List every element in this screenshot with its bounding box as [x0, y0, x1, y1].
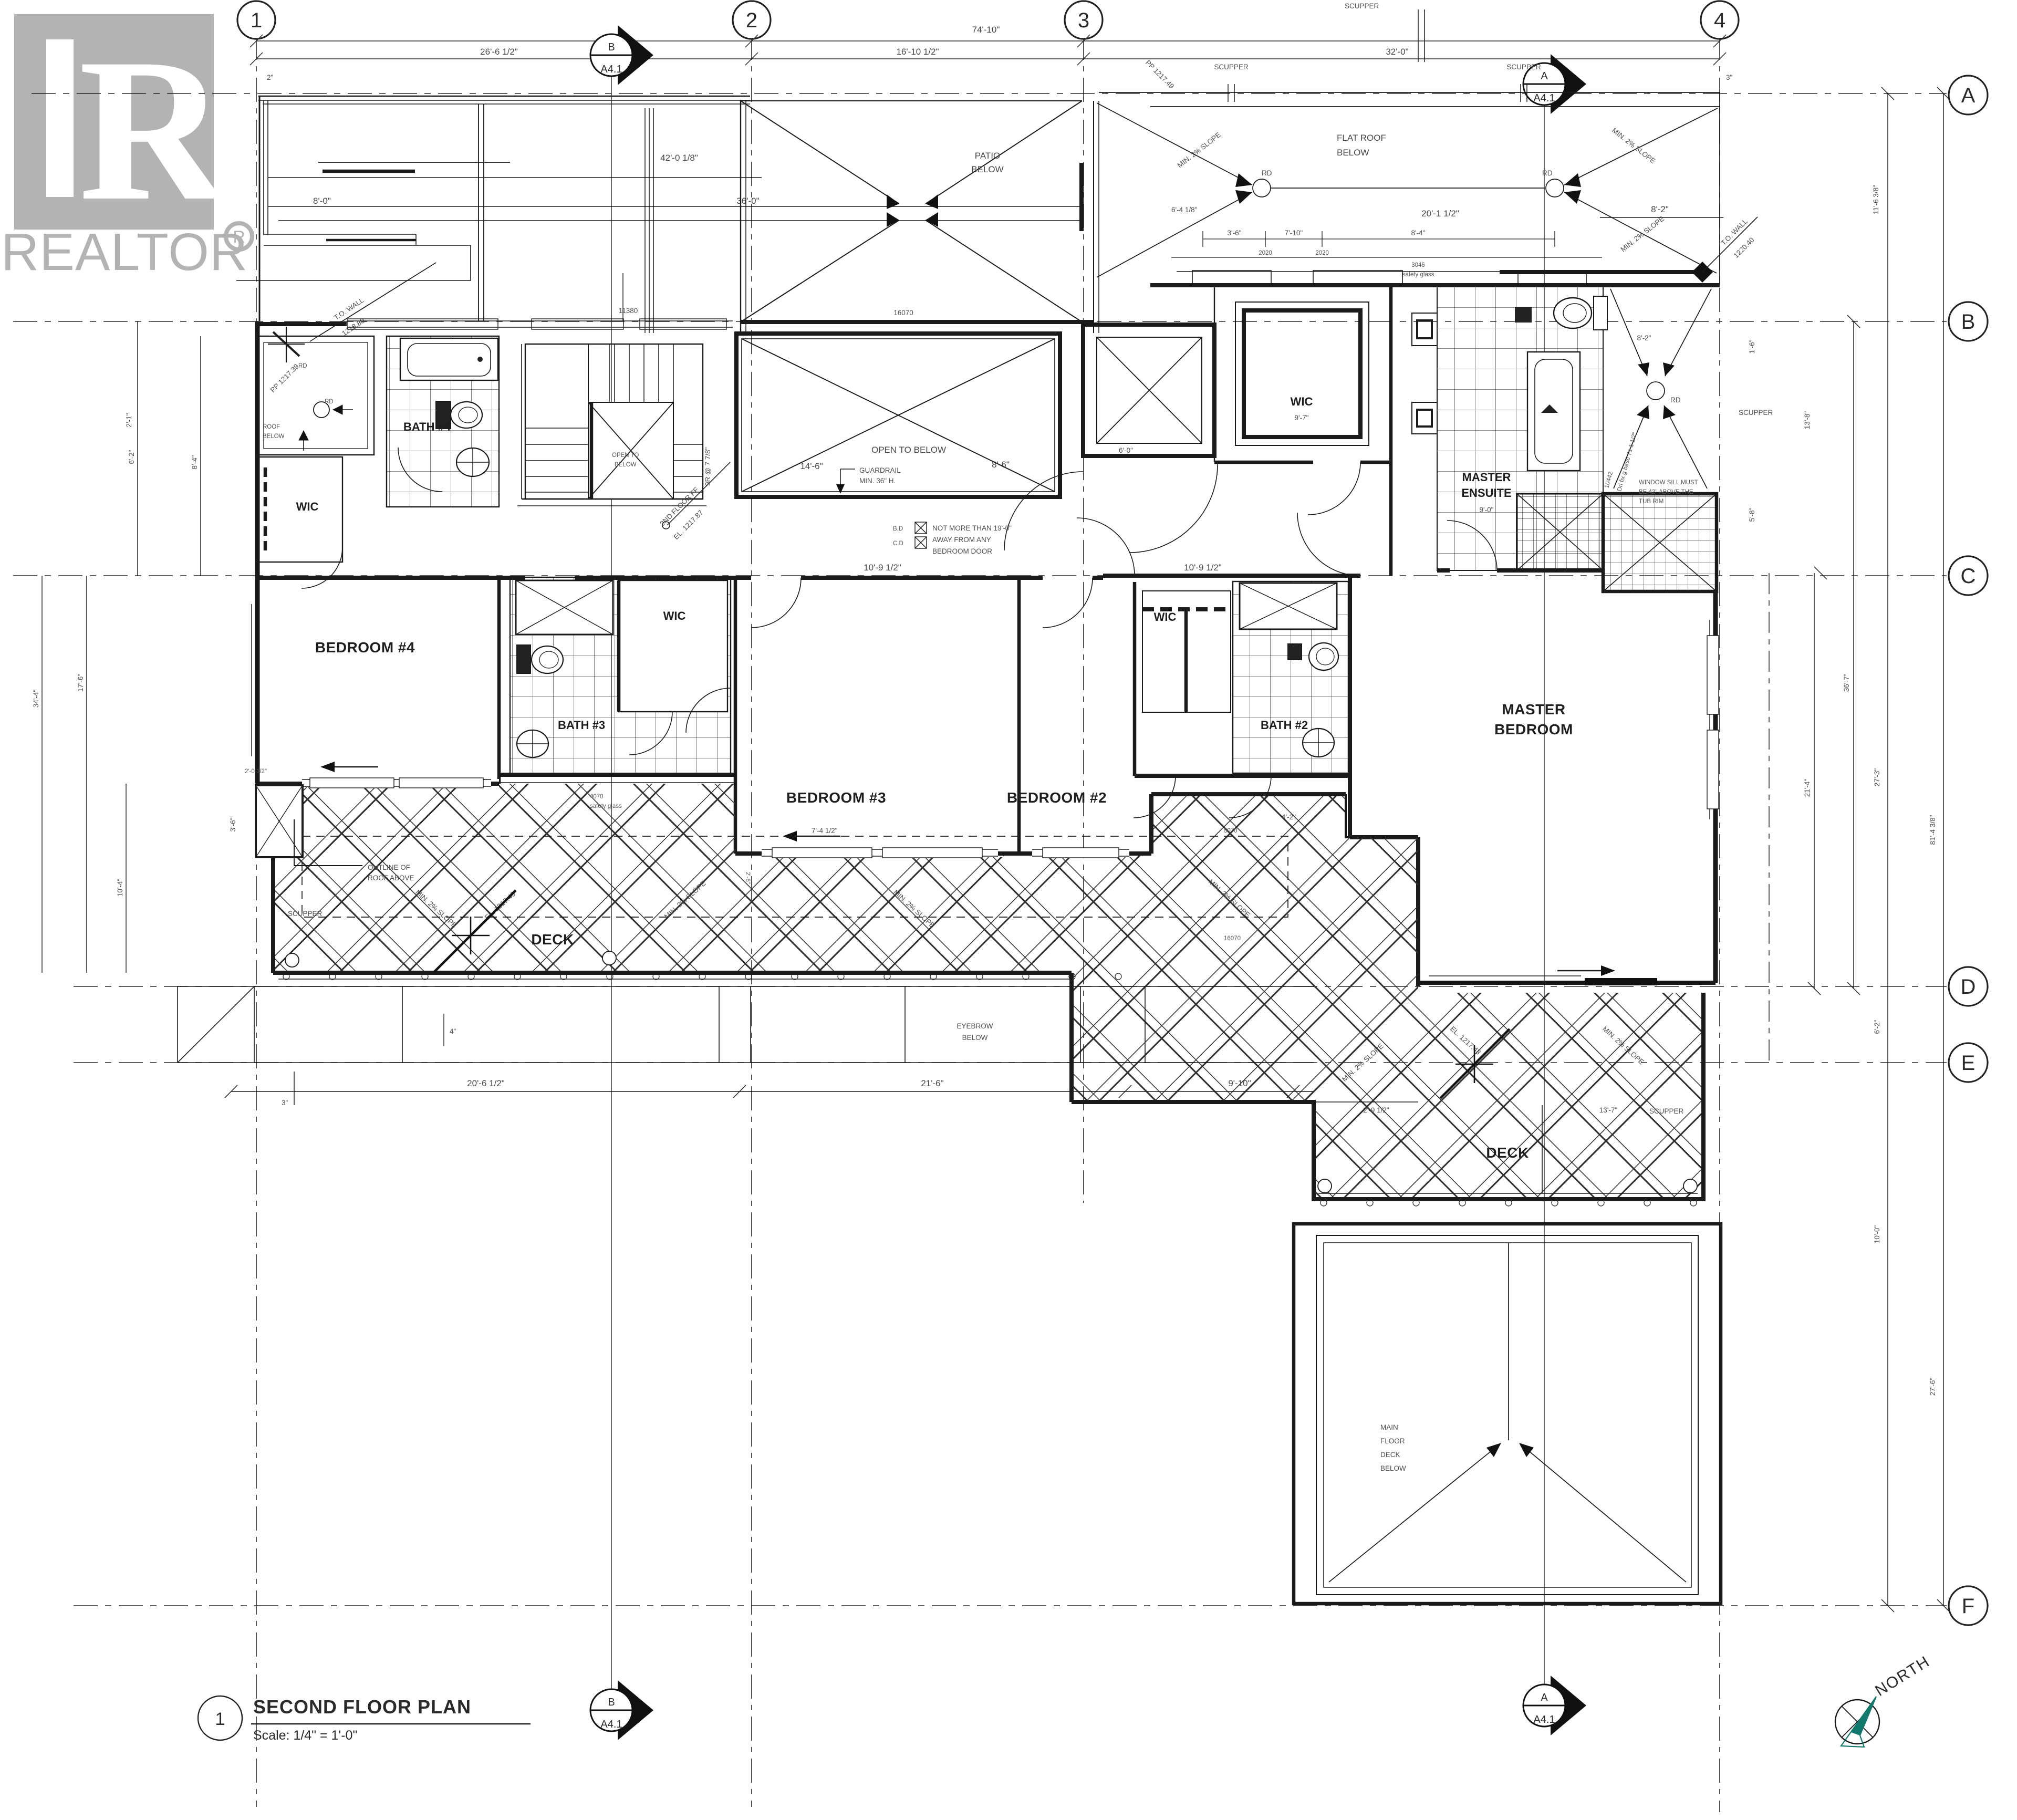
- svg-text:27'-3": 27'-3": [1873, 768, 1881, 787]
- svg-text:A4.1: A4.1: [1533, 1714, 1555, 1725]
- svg-text:4'-2": 4'-2": [1282, 813, 1296, 821]
- svg-text:BELOW: BELOW: [971, 164, 1003, 174]
- svg-text:3'-6": 3'-6": [229, 817, 237, 831]
- svg-text:ROOF ABOVE: ROOF ABOVE: [368, 874, 414, 882]
- svg-text:1: 1: [215, 1709, 225, 1729]
- svg-text:MASTER: MASTER: [1462, 471, 1511, 484]
- svg-text:BATH #3: BATH #3: [558, 719, 605, 732]
- svg-text:GUARDRAIL: GUARDRAIL: [859, 466, 901, 474]
- svg-text:2: 2: [746, 9, 757, 32]
- svg-text:A: A: [1961, 84, 1976, 107]
- svg-text:2020: 2020: [1315, 250, 1329, 256]
- svg-text:21'-6": 21'-6": [921, 1078, 943, 1088]
- svg-text:R: R: [79, 16, 229, 243]
- svg-text:27'-6": 27'-6": [1929, 1378, 1937, 1396]
- svg-text:2'-1": 2'-1": [125, 413, 133, 427]
- svg-text:MASTER: MASTER: [1502, 701, 1565, 717]
- svg-text:REALTOR: REALTOR: [1, 223, 248, 282]
- svg-text:WIC: WIC: [1154, 610, 1177, 623]
- svg-text:10'-9 1/2": 10'-9 1/2": [1184, 563, 1222, 573]
- svg-text:20'-1 1/2": 20'-1 1/2": [1421, 209, 1459, 219]
- svg-text:6'-0": 6'-0": [1119, 446, 1133, 454]
- svg-text:6'-2": 6'-2": [128, 450, 136, 464]
- svg-text:ROOF: ROOF: [263, 424, 280, 430]
- svg-text:RD: RD: [325, 399, 334, 405]
- svg-text:R: R: [233, 227, 245, 246]
- svg-text:13'-8": 13'-8": [1803, 411, 1811, 430]
- svg-text:SCUPPER: SCUPPER: [1649, 1107, 1684, 1115]
- svg-text:1'-6": 1'-6": [1748, 339, 1756, 353]
- svg-text:6'-4 1/8": 6'-4 1/8": [1171, 206, 1198, 214]
- svg-text:10'-4": 10'-4": [116, 879, 124, 897]
- svg-text:4": 4": [450, 1027, 456, 1035]
- svg-text:BELOW: BELOW: [263, 433, 285, 440]
- svg-text:A4.1: A4.1: [600, 1719, 622, 1730]
- svg-text:32'-0": 32'-0": [1386, 47, 1408, 57]
- svg-text:36'-7": 36'-7": [1843, 674, 1850, 692]
- svg-text:BEDROOM #4: BEDROOM #4: [315, 639, 415, 656]
- svg-text:DECK: DECK: [1486, 1145, 1529, 1161]
- svg-text:A: A: [1541, 70, 1548, 82]
- svg-text:RD: RD: [1670, 396, 1681, 404]
- svg-text:A4.1: A4.1: [600, 64, 622, 75]
- svg-text:2'-0 1/2": 2'-0 1/2": [245, 768, 267, 775]
- svg-text:9R @ 7 7/8": 9R @ 7 7/8": [704, 448, 712, 486]
- svg-text:A4.1: A4.1: [1533, 92, 1555, 104]
- svg-text:WIC: WIC: [663, 609, 686, 622]
- svg-text:14'-6": 14'-6": [800, 461, 823, 471]
- svg-text:ENSUITE: ENSUITE: [1461, 486, 1511, 500]
- svg-text:Scale: 1/4" = 1'-0": Scale: 1/4" = 1'-0": [253, 1728, 357, 1743]
- svg-text:8'-4": 8'-4": [191, 455, 199, 469]
- svg-text:BEDROOM DOOR: BEDROOM DOOR: [932, 547, 992, 555]
- svg-text:B: B: [608, 1697, 615, 1708]
- svg-text:safety glass: safety glass: [1402, 272, 1434, 278]
- svg-text:BE 42" ABOVE THE: BE 42" ABOVE THE: [1639, 489, 1693, 495]
- svg-text:16'-10 1/2": 16'-10 1/2": [896, 47, 939, 57]
- svg-text:DECK: DECK: [531, 931, 574, 948]
- svg-text:16070: 16070: [1224, 935, 1241, 942]
- svg-text:8'-2": 8'-2": [1637, 334, 1651, 342]
- svg-text:34'-4": 34'-4": [32, 690, 40, 708]
- svg-text:B.D: B.D: [893, 526, 903, 532]
- svg-text:9'-0": 9'-0": [1480, 506, 1494, 514]
- svg-text:3'-6": 3'-6": [1228, 229, 1242, 237]
- svg-text:17'-6": 17'-6": [77, 674, 85, 692]
- svg-text:3: 3: [1078, 9, 1089, 32]
- svg-text:8'-2": 8'-2": [1651, 204, 1669, 214]
- svg-text:BEDROOM: BEDROOM: [1494, 721, 1573, 737]
- svg-text:RD: RD: [1542, 169, 1553, 177]
- svg-text:81'-4 3/8": 81'-4 3/8": [1929, 815, 1937, 845]
- svg-text:BELOW: BELOW: [1337, 148, 1369, 158]
- svg-text:safety glass: safety glass: [590, 803, 622, 809]
- svg-text:BATH #2: BATH #2: [1261, 719, 1308, 732]
- svg-text:5070: 5070: [1224, 828, 1238, 834]
- svg-text:SCUPPER: SCUPPER: [288, 910, 323, 918]
- svg-text:4070: 4070: [590, 794, 604, 800]
- svg-text:EYEBROW: EYEBROW: [956, 1022, 993, 1030]
- svg-text:13'-7": 13'-7": [1599, 1106, 1618, 1114]
- svg-text:8'-4": 8'-4": [1411, 229, 1426, 237]
- svg-text:4: 4: [1714, 9, 1725, 32]
- svg-text:6'-2": 6'-2": [1873, 1020, 1881, 1034]
- svg-text:7'-4 1/2": 7'-4 1/2": [812, 827, 838, 835]
- svg-text:3": 3": [1726, 74, 1733, 81]
- svg-text:2'-6": 2'-6": [744, 872, 751, 884]
- svg-text:NOT MORE THAN 19'-0": NOT MORE THAN 19'-0": [932, 524, 1012, 532]
- svg-text:1: 1: [251, 9, 262, 32]
- svg-text:MAIN: MAIN: [1380, 1423, 1398, 1431]
- svg-text:WINDOW SILL MUST: WINDOW SILL MUST: [1639, 480, 1698, 486]
- svg-text:D: D: [1961, 975, 1976, 999]
- svg-text:9'-10": 9'-10": [1228, 1078, 1251, 1088]
- svg-text:FLOOR: FLOOR: [1380, 1437, 1405, 1445]
- svg-text:WIC: WIC: [1291, 395, 1313, 408]
- svg-text:OPEN TO BELOW: OPEN TO BELOW: [871, 445, 946, 455]
- svg-text:WIC: WIC: [296, 500, 319, 513]
- svg-text:TUB RIM: TUB RIM: [1639, 498, 1663, 505]
- svg-text:16070: 16070: [893, 309, 913, 317]
- svg-text:RD: RD: [1262, 169, 1272, 177]
- svg-text:BATH #4: BATH #4: [403, 420, 451, 433]
- svg-text:8'-0": 8'-0": [313, 196, 331, 206]
- svg-text:74'-10": 74'-10": [972, 25, 1000, 35]
- svg-text:A: A: [1541, 1692, 1548, 1703]
- svg-text:SECOND FLOOR PLAN: SECOND FLOOR PLAN: [253, 1696, 471, 1718]
- svg-text:21'-4": 21'-4": [1803, 779, 1811, 797]
- svg-text:RD: RD: [298, 363, 307, 369]
- svg-text:BELOW: BELOW: [615, 462, 637, 468]
- svg-text:F: F: [1962, 1595, 1974, 1618]
- svg-text:BELOW: BELOW: [1380, 1464, 1406, 1472]
- svg-text:OUTLINE OF: OUTLINE OF: [368, 864, 410, 871]
- svg-text:SCUPPER: SCUPPER: [1506, 63, 1541, 71]
- svg-text:B: B: [608, 41, 615, 53]
- svg-text:BEDROOM #3: BEDROOM #3: [786, 789, 886, 806]
- svg-text:26'-6 1/2": 26'-6 1/2": [480, 47, 518, 57]
- svg-text:2020: 2020: [1259, 250, 1272, 256]
- svg-text:9'-7": 9'-7": [1295, 414, 1309, 422]
- svg-text:FLAT ROOF: FLAT ROOF: [1337, 133, 1386, 143]
- svg-text:5'-8": 5'-8": [1748, 507, 1756, 522]
- svg-text:20'-6 1/2": 20'-6 1/2": [467, 1078, 505, 1088]
- svg-text:C: C: [1961, 565, 1976, 588]
- svg-text:OPEN TO: OPEN TO: [612, 452, 639, 459]
- svg-text:PATIO: PATIO: [975, 151, 1001, 161]
- svg-text:7'-10": 7'-10": [1285, 229, 1303, 237]
- svg-text:MIN. 36" H.: MIN. 36" H.: [859, 477, 896, 485]
- svg-text:B: B: [1961, 310, 1976, 334]
- svg-text:BEDROOM #2: BEDROOM #2: [1007, 789, 1107, 806]
- svg-text:AWAY FROM ANY: AWAY FROM ANY: [932, 536, 991, 544]
- svg-text:C.D: C.D: [893, 540, 903, 547]
- svg-text:2": 2": [267, 74, 274, 81]
- svg-text:2'-9 1/2": 2'-9 1/2": [1363, 1106, 1389, 1114]
- svg-text:SCUPPER: SCUPPER: [1739, 409, 1773, 417]
- svg-text:11380: 11380: [619, 307, 638, 315]
- svg-text:11'-6 3/8": 11'-6 3/8": [1872, 185, 1880, 214]
- svg-text:3046: 3046: [1411, 262, 1425, 268]
- svg-text:10'-9 1/2": 10'-9 1/2": [864, 563, 901, 573]
- svg-text:E: E: [1961, 1052, 1976, 1075]
- svg-text:BELOW: BELOW: [962, 1034, 988, 1042]
- svg-text:DECK: DECK: [1380, 1451, 1400, 1459]
- svg-text:SCUPPER: SCUPPER: [1345, 2, 1379, 10]
- svg-text:10'-0": 10'-0": [1873, 1225, 1881, 1244]
- svg-text:SCUPPER: SCUPPER: [1214, 63, 1249, 71]
- svg-text:3": 3": [282, 1099, 288, 1107]
- svg-text:42'-0 1/8": 42'-0 1/8": [660, 153, 698, 163]
